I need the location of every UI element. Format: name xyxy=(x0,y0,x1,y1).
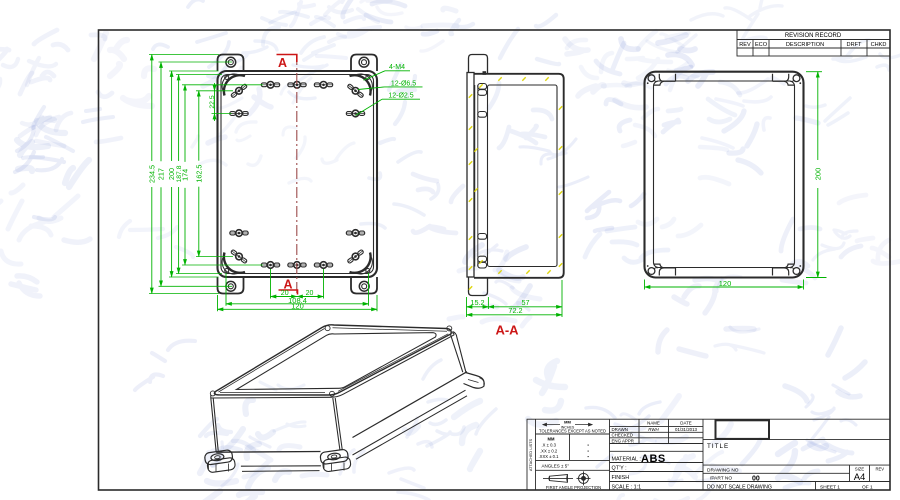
svg-text:162.5: 162.5 xyxy=(194,165,203,183)
svg-text:DRAWN: DRAWN xyxy=(612,427,628,432)
svg-text:MM: MM xyxy=(548,437,555,442)
svg-text:SCALE : 1:1: SCALE : 1:1 xyxy=(612,484,642,490)
svg-text:FINISH: FINISH xyxy=(612,475,630,481)
svg-text:57: 57 xyxy=(521,298,529,307)
svg-text:TITLE: TITLE xyxy=(707,443,729,450)
svg-text:▪: ▪ xyxy=(588,454,590,459)
svg-text:72.2: 72.2 xyxy=(508,306,522,315)
svg-text:ENG APPR: ENG APPR xyxy=(612,438,634,443)
svg-text:ECO: ECO xyxy=(755,42,768,48)
svg-text:A: A xyxy=(278,56,287,70)
svg-text:A4: A4 xyxy=(854,472,866,483)
svg-text:/PART NO: /PART NO xyxy=(710,476,732,482)
svg-text:200: 200 xyxy=(813,168,822,181)
svg-text:REV: REV xyxy=(875,466,884,471)
svg-text:DRAWING NO: DRAWING NO xyxy=(707,468,739,474)
svg-text:REV: REV xyxy=(739,42,751,48)
svg-text:SIZE: SIZE xyxy=(855,466,865,471)
svg-text:SHEET 1: SHEET 1 xyxy=(820,484,840,490)
svg-text:174: 174 xyxy=(181,169,190,181)
svg-text:200: 200 xyxy=(167,168,176,180)
svg-text:12-Ø6.5: 12-Ø6.5 xyxy=(391,80,416,87)
svg-text:DRFT: DRFT xyxy=(847,42,862,48)
svg-text:DO NOT SCALE DRAWING: DO NOT SCALE DRAWING xyxy=(707,484,772,490)
svg-text:4-M4: 4-M4 xyxy=(389,64,405,71)
svg-text:OF 1: OF 1 xyxy=(862,484,873,490)
svg-text:12-Ø2.5: 12-Ø2.5 xyxy=(388,93,413,100)
svg-text:.XXX ± 0.1: .XXX ± 0.1 xyxy=(539,454,560,459)
svg-text:DESCRIPTION: DESCRIPTION xyxy=(786,42,824,48)
svg-text:NAME: NAME xyxy=(647,421,660,426)
svg-text:CHECKED: CHECKED xyxy=(612,433,633,438)
svg-text:MATERIAL :: MATERIAL : xyxy=(612,457,641,463)
svg-text:15.2: 15.2 xyxy=(470,298,484,307)
svg-text:CHKD: CHKD xyxy=(871,42,887,48)
svg-text:217: 217 xyxy=(157,168,166,180)
svg-text:MM: MM xyxy=(564,420,571,425)
svg-text:▪: ▪ xyxy=(588,443,590,448)
svg-text:ABS: ABS xyxy=(641,453,666,465)
svg-text:.X ± 0.3: .X ± 0.3 xyxy=(542,443,557,448)
svg-text:120: 120 xyxy=(719,279,732,288)
svg-text:▪: ▪ xyxy=(588,448,590,453)
svg-text:TOLERANCES EXCEPT AS NOTED: TOLERANCES EXCEPT AS NOTED xyxy=(539,429,606,434)
svg-text:22.5: 22.5 xyxy=(209,95,216,108)
svg-text:FIRST ANGLE PROJECTION: FIRST ANGLE PROJECTION xyxy=(546,485,601,490)
svg-text:REVISION RECORD: REVISION RECORD xyxy=(785,33,842,39)
svg-text:A-A: A-A xyxy=(495,323,519,338)
svg-text:.XX ± 0.2: .XX ± 0.2 xyxy=(540,448,558,453)
svg-text:120: 120 xyxy=(291,301,304,310)
svg-text:234.5: 234.5 xyxy=(147,165,156,183)
svg-text:01/31/2013: 01/31/2013 xyxy=(675,427,698,432)
svg-text:00: 00 xyxy=(752,475,760,482)
svg-text:ANGLES ± 5°: ANGLES ± 5° xyxy=(542,463,570,468)
svg-text:RWH: RWH xyxy=(648,427,659,432)
svg-text:DATE: DATE xyxy=(680,421,691,426)
svg-text:ATTACHED LISTS: ATTACHED LISTS xyxy=(528,438,533,471)
svg-text:QT’Y :: QT’Y : xyxy=(612,466,627,472)
